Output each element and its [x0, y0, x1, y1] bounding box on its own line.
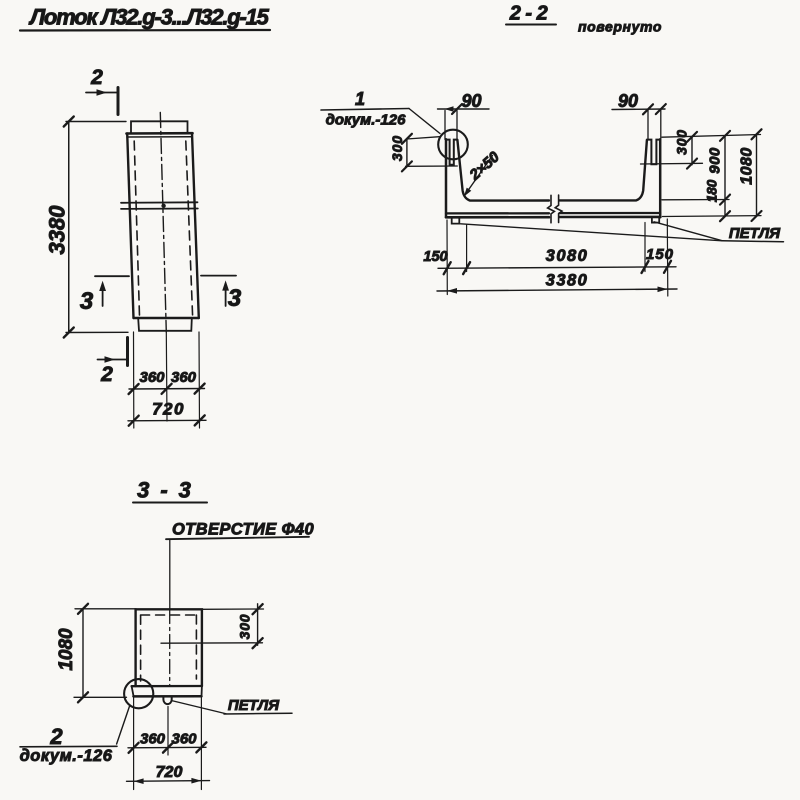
- svg-text:360: 360: [140, 731, 166, 748]
- svg-text:90: 90: [461, 91, 481, 111]
- svg-text:2-2: 2-2: [509, 3, 552, 25]
- svg-text:2: 2: [90, 66, 103, 89]
- svg-text:150: 150: [423, 249, 447, 265]
- svg-text:повернуто: повернуто: [578, 19, 662, 35]
- svg-text:900: 900: [707, 147, 724, 174]
- svg-text:180: 180: [705, 179, 720, 202]
- svg-text:300: 300: [237, 614, 253, 640]
- svg-text:150: 150: [646, 246, 674, 263]
- svg-text:1080: 1080: [56, 628, 77, 671]
- svg-text:360: 360: [139, 369, 165, 386]
- svg-text:3: 3: [228, 285, 242, 312]
- svg-text:ОТВЕРСТИЕ Ф40: ОТВЕРСТИЕ Ф40: [172, 521, 315, 539]
- svg-text:720: 720: [156, 764, 183, 781]
- svg-text:1080: 1080: [739, 147, 756, 185]
- svg-text:докум.-126: докум.-126: [20, 747, 113, 765]
- svg-text:1: 1: [355, 89, 365, 109]
- svg-text:3380: 3380: [546, 272, 589, 290]
- svg-text:ПЕТЛЯ: ПЕТЛЯ: [228, 697, 280, 714]
- svg-text:3380: 3380: [45, 205, 70, 255]
- svg-text:ПЕТЛЯ: ПЕТЛЯ: [729, 225, 781, 242]
- svg-text:3-3: 3-3: [137, 478, 202, 503]
- svg-text:90: 90: [618, 91, 638, 111]
- svg-text:360: 360: [171, 369, 197, 386]
- svg-text:3: 3: [80, 288, 94, 315]
- svg-text:Лоток Л32.g-3...Л32.g-15: Лоток Л32.g-3...Л32.g-15: [28, 5, 270, 30]
- svg-text:2: 2: [49, 724, 63, 749]
- svg-text:300: 300: [389, 135, 405, 161]
- svg-text:докум.-126: докум.-126: [326, 112, 407, 129]
- svg-text:3080: 3080: [546, 247, 589, 265]
- svg-text:300: 300: [674, 129, 690, 155]
- svg-text:360: 360: [171, 731, 197, 748]
- svg-text:2: 2: [100, 363, 113, 386]
- svg-text:720: 720: [152, 400, 185, 419]
